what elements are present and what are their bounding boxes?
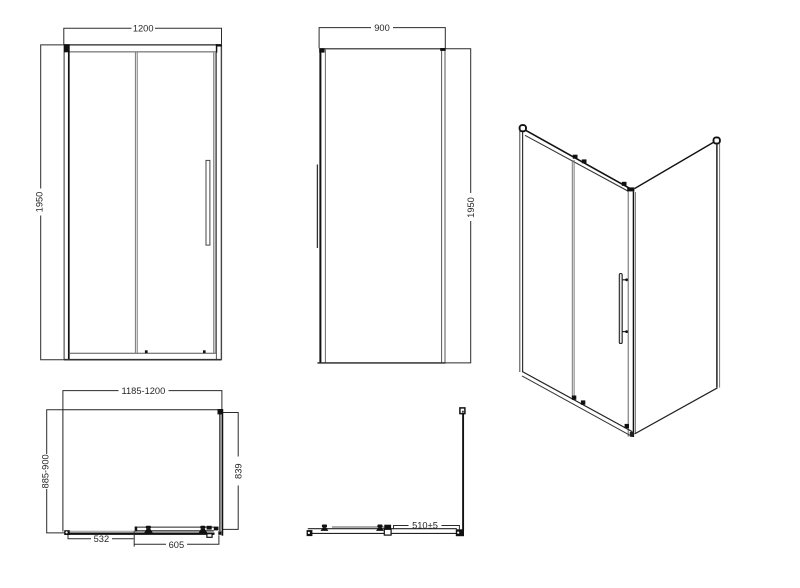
svg-text:1200: 1200 (133, 24, 154, 34)
svg-text:839: 839 (233, 463, 243, 479)
svg-text:900: 900 (374, 23, 390, 33)
svg-text:1185-1200: 1185-1200 (122, 386, 166, 396)
svg-text:885-900: 885-900 (40, 454, 50, 488)
svg-text:605: 605 (169, 540, 185, 550)
svg-text:1950: 1950 (35, 192, 45, 213)
svg-text:1950: 1950 (466, 197, 476, 218)
svg-text:532: 532 (94, 534, 110, 544)
